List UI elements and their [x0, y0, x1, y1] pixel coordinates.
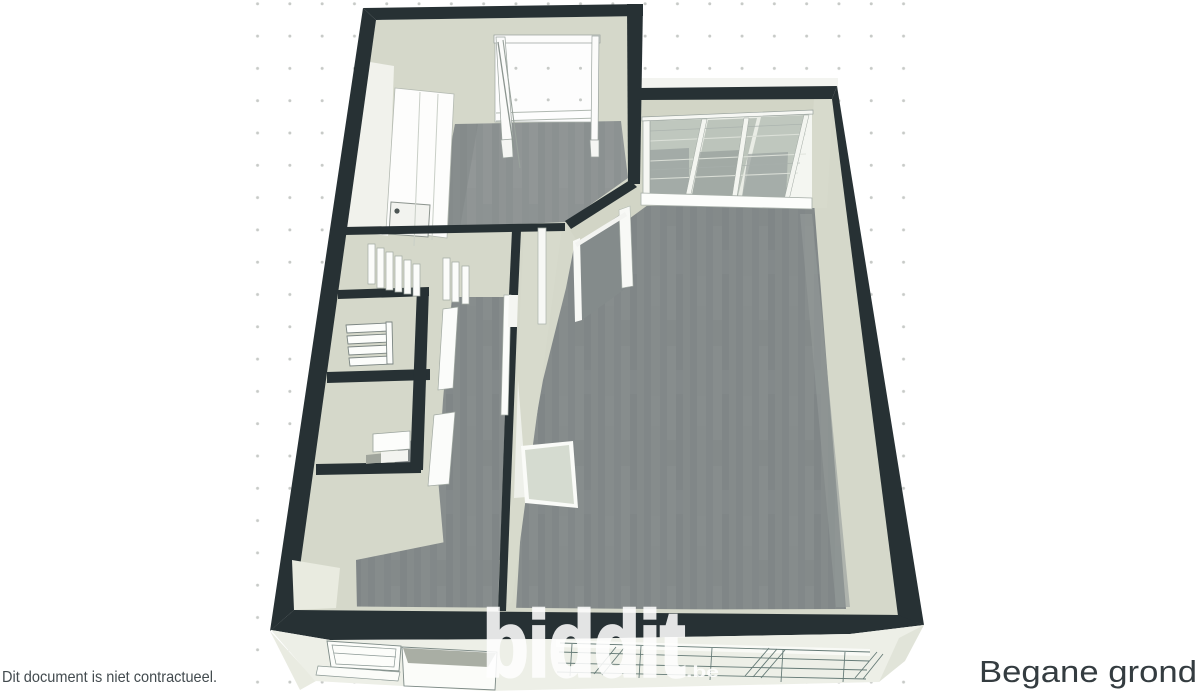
svg-text:biddit: biddit	[483, 592, 685, 696]
svg-text:Dit document is niet contractu: Dit document is niet contractueel.	[2, 669, 217, 686]
svg-text:.be: .be	[686, 664, 719, 681]
svg-text:Begane grond: Begane grond	[979, 654, 1197, 689]
